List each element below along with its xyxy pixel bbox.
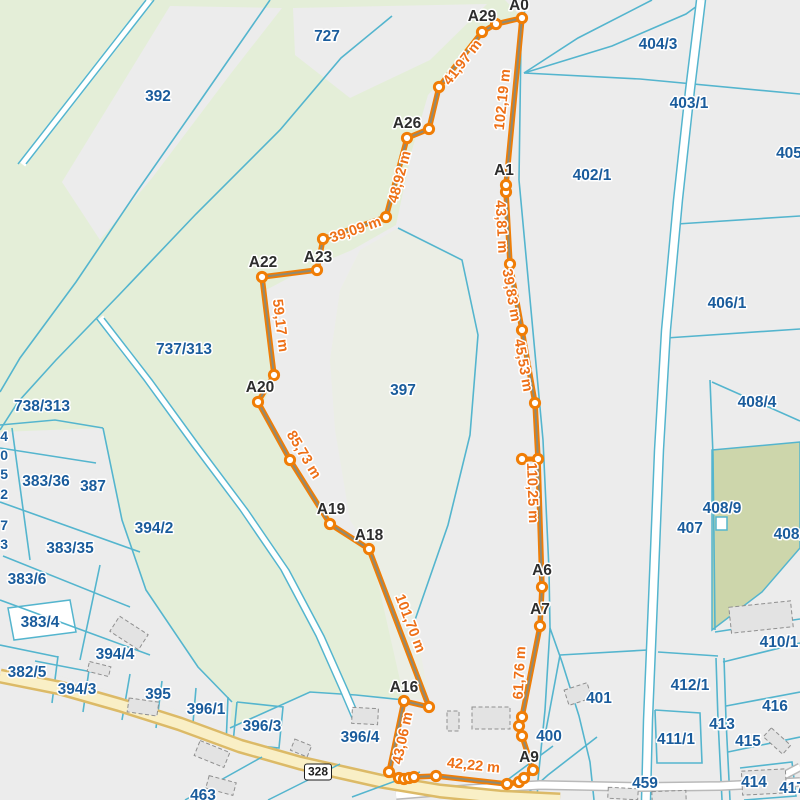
parcel-boundary-line — [560, 650, 648, 655]
parcel-label-clipped: 5 — [0, 466, 8, 482]
parcel-label: 382/5 — [8, 664, 47, 681]
measurement-point[interactable] — [318, 234, 327, 243]
measurement-point[interactable] — [501, 180, 510, 189]
measurement-point[interactable] — [409, 772, 418, 781]
parcel-label: 412/1 — [671, 677, 710, 694]
parcel-label-clipped: 7 — [0, 517, 8, 533]
measurement-vertex-label: A9 — [519, 749, 539, 766]
measurement-point[interactable] — [517, 325, 526, 334]
measurement-point[interactable] — [535, 621, 544, 630]
parcel-label: 392 — [145, 88, 171, 105]
parcel-label: 403/1 — [670, 95, 709, 112]
measurement-point[interactable] — [477, 27, 486, 36]
parcel-label: 396/1 — [187, 701, 226, 718]
measurement-vertex-label: A1 — [494, 162, 514, 179]
measurement-vertex-label: A26 — [393, 115, 422, 132]
measurement-vertex-label: A7 — [530, 601, 550, 618]
building-footprint — [352, 707, 379, 724]
measurement-distance-label: 61,76 m — [511, 646, 530, 700]
parcel-label: 414 — [741, 774, 767, 791]
measurement-distance-label: 45,53 m — [510, 338, 535, 393]
measurement-point[interactable] — [312, 265, 321, 274]
parcel-label: 737/313 — [156, 341, 212, 358]
parcel-label: 417 — [779, 780, 800, 797]
measurement-distance-label: 110,25 m — [523, 462, 541, 523]
measurement-point[interactable] — [424, 124, 433, 133]
measurement-point[interactable] — [517, 712, 526, 721]
building-footprint — [447, 711, 459, 731]
measurement-point[interactable] — [528, 765, 537, 774]
parcel-label-clipped: 2 — [0, 486, 8, 502]
parcel-label-clipped: 4 — [0, 428, 8, 444]
parcel-label: 738/313 — [14, 398, 70, 415]
building-footprint — [472, 707, 510, 729]
parcel-label: 406/1 — [708, 295, 747, 312]
map-viewport[interactable]: 727392404/3403/1405402/1406/1737/3133977… — [0, 0, 800, 800]
parcel-label: 394/2 — [135, 520, 174, 537]
parcel-label: 404/3 — [639, 36, 678, 53]
parcel-408-9-marker — [716, 517, 727, 530]
parcel-label: 396/3 — [243, 718, 282, 735]
parcel-label: 407 — [677, 520, 703, 537]
cadastral-map-canvas[interactable]: 727392404/3403/1405402/1406/1737/3133977… — [0, 0, 800, 800]
measurement-point[interactable] — [253, 397, 262, 406]
parcel-label: 387 — [80, 478, 106, 495]
parcel-label-clipped: 3 — [0, 536, 8, 552]
measurement-distance-label: 43,81 m — [492, 200, 511, 254]
measurement-point[interactable] — [502, 779, 511, 788]
parcel-label: 413 — [709, 716, 735, 733]
building-footprint — [763, 728, 790, 754]
measurement-point[interactable] — [434, 82, 443, 91]
parcel-label: 383/4 — [21, 614, 60, 631]
parcel-label-clipped: 0 — [0, 447, 8, 463]
parcel-label: 394/3 — [58, 681, 97, 698]
parcel-label: 411/1 — [657, 731, 695, 748]
parcel-boundary-line — [666, 329, 800, 338]
measurement-point[interactable] — [424, 702, 433, 711]
measurement-point[interactable] — [537, 582, 546, 591]
measurement-point[interactable] — [399, 696, 408, 705]
measurement-vertex-label: A23 — [304, 249, 333, 266]
measurement-vertex-label: A19 — [317, 501, 346, 518]
measurement-point[interactable] — [364, 544, 373, 553]
measurement-point[interactable] — [325, 519, 334, 528]
parcel-label: 408/9 — [703, 500, 742, 517]
parcel-label: 415 — [735, 733, 761, 750]
parcel-label: 395 — [145, 686, 171, 703]
parcel-label: 463 — [190, 787, 216, 800]
parcel-boundary-line — [658, 652, 718, 656]
parcel-label: 400 — [536, 728, 562, 745]
parcel-label: 394/4 — [96, 646, 135, 663]
parcel-label: 408/4 — [738, 394, 777, 411]
parcel-label: 396/4 — [341, 729, 380, 746]
parcel-label: 383/36 — [22, 473, 70, 490]
measurement-point[interactable] — [517, 13, 526, 22]
measurement-vertex-label: A6 — [532, 562, 552, 579]
parcel-label: 405 — [776, 145, 800, 162]
parcel-boundary-line — [524, 73, 800, 94]
parcel-boundary-line — [519, 0, 550, 628]
measurement-point[interactable] — [384, 767, 393, 776]
measurement-point[interactable] — [530, 398, 539, 407]
measurement-vertex-label: A16 — [390, 679, 419, 696]
parcel-label: 459 — [632, 775, 658, 792]
parcel-label: 727 — [314, 28, 340, 45]
measurement-vertex-label: A18 — [355, 527, 384, 544]
measurement-point[interactable] — [285, 455, 294, 464]
measurement-point[interactable] — [517, 731, 526, 740]
parcel-label: 410/1 — [760, 634, 799, 651]
parcel-label: 383/6 — [8, 571, 47, 588]
road-number-badge: 328 — [304, 764, 332, 781]
measurement-point[interactable] — [402, 133, 411, 142]
measurement-point[interactable] — [257, 272, 266, 281]
parcel-boundary-line — [677, 216, 800, 224]
parcel-label: 402/1 — [573, 167, 612, 184]
parcel-label: 408/8 — [774, 526, 800, 543]
measurement-distance-label: 42,22 m — [446, 755, 501, 776]
measurement-point[interactable] — [431, 771, 440, 780]
measurement-vertex-label: A29 — [468, 8, 497, 25]
parcel-label: 383/35 — [46, 540, 94, 557]
parcel-label: 401 — [586, 690, 612, 707]
measurement-point[interactable] — [381, 212, 390, 221]
parcel-label: 416 — [762, 698, 788, 715]
measurement-vertex-label: A22 — [249, 254, 277, 271]
measurement-vertex-label: A0 — [509, 0, 529, 14]
parcel-label: 397 — [390, 382, 416, 399]
measurement-vertex-label: A20 — [246, 379, 274, 396]
measurement-point[interactable] — [519, 773, 528, 782]
measurement-distance-label: 39,83 m — [498, 268, 523, 323]
